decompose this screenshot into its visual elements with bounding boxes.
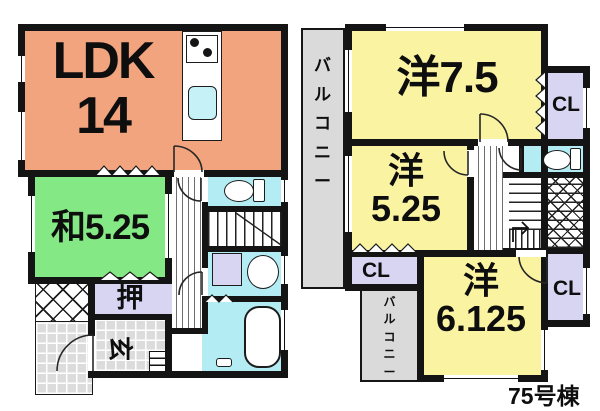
yo525-kanji: 洋 bbox=[388, 150, 424, 191]
window bbox=[18, 56, 25, 82]
sliding-door-zigzag bbox=[96, 165, 160, 176]
ldk-name: LDK bbox=[53, 32, 154, 90]
washitsu-label: 和5.25 bbox=[28, 210, 172, 245]
building-number: 75号棟 bbox=[508, 385, 598, 408]
washing-machine-icon bbox=[212, 253, 242, 286]
bath-drain bbox=[216, 358, 232, 367]
yo6125-label: 洋 6.125 bbox=[420, 262, 542, 338]
oshiire-label: 押 bbox=[88, 285, 172, 312]
balcony-bottom-label: バルコニー bbox=[382, 294, 397, 380]
stairs-2f-hatch bbox=[545, 178, 583, 248]
door-arc-icon bbox=[56, 334, 95, 373]
stove-burner bbox=[203, 48, 212, 57]
bathtub-icon bbox=[244, 306, 281, 368]
toilet-icon bbox=[224, 180, 254, 202]
door-arc-icon bbox=[177, 177, 202, 202]
window bbox=[345, 50, 352, 112]
yo6125-kanji: 洋 bbox=[463, 260, 499, 301]
genkan-label: 玄 bbox=[107, 334, 132, 364]
door-arc-icon bbox=[479, 113, 509, 143]
folding-door-zigzag bbox=[205, 294, 235, 303]
porch-hatch bbox=[36, 281, 90, 323]
washbasin-icon bbox=[247, 255, 279, 289]
toilet-icon bbox=[253, 179, 265, 202]
cl-mid-label: CL bbox=[350, 260, 402, 281]
yo525-label: 洋 5.25 bbox=[350, 152, 462, 228]
window bbox=[281, 310, 288, 350]
stairs-1f-diagonal bbox=[208, 212, 282, 246]
window bbox=[281, 256, 288, 284]
yo75-label: 洋7.5 bbox=[352, 56, 542, 100]
door-arc-icon bbox=[178, 271, 203, 296]
door-arc-icon bbox=[498, 147, 522, 171]
toilet-icon bbox=[543, 150, 571, 170]
balcony-left-label: バルコニー bbox=[312, 52, 333, 287]
door-arc-icon bbox=[173, 145, 204, 173]
stairs-2f-arrow bbox=[508, 218, 534, 244]
yo6125-size: 6.125 bbox=[436, 298, 526, 339]
ldk-size: 14 bbox=[76, 87, 130, 145]
window bbox=[444, 375, 518, 382]
toilet-icon bbox=[570, 148, 581, 170]
cl-top-label: CL bbox=[546, 94, 586, 115]
floor-plan: LDK 14 和5.25 押 玄 bbox=[0, 0, 600, 411]
closet-door-zigzag bbox=[352, 243, 416, 253]
window bbox=[281, 180, 288, 202]
cl-bottom-label: CL bbox=[548, 278, 586, 299]
ldk-label: LDK 14 bbox=[28, 34, 178, 143]
window bbox=[386, 24, 464, 31]
kitchen-sink-icon bbox=[188, 86, 217, 120]
window bbox=[541, 330, 548, 370]
stove-burner bbox=[190, 38, 199, 47]
window bbox=[18, 112, 25, 160]
yo525-size: 5.25 bbox=[371, 188, 441, 229]
sliding-door-zigzag bbox=[100, 271, 160, 281]
